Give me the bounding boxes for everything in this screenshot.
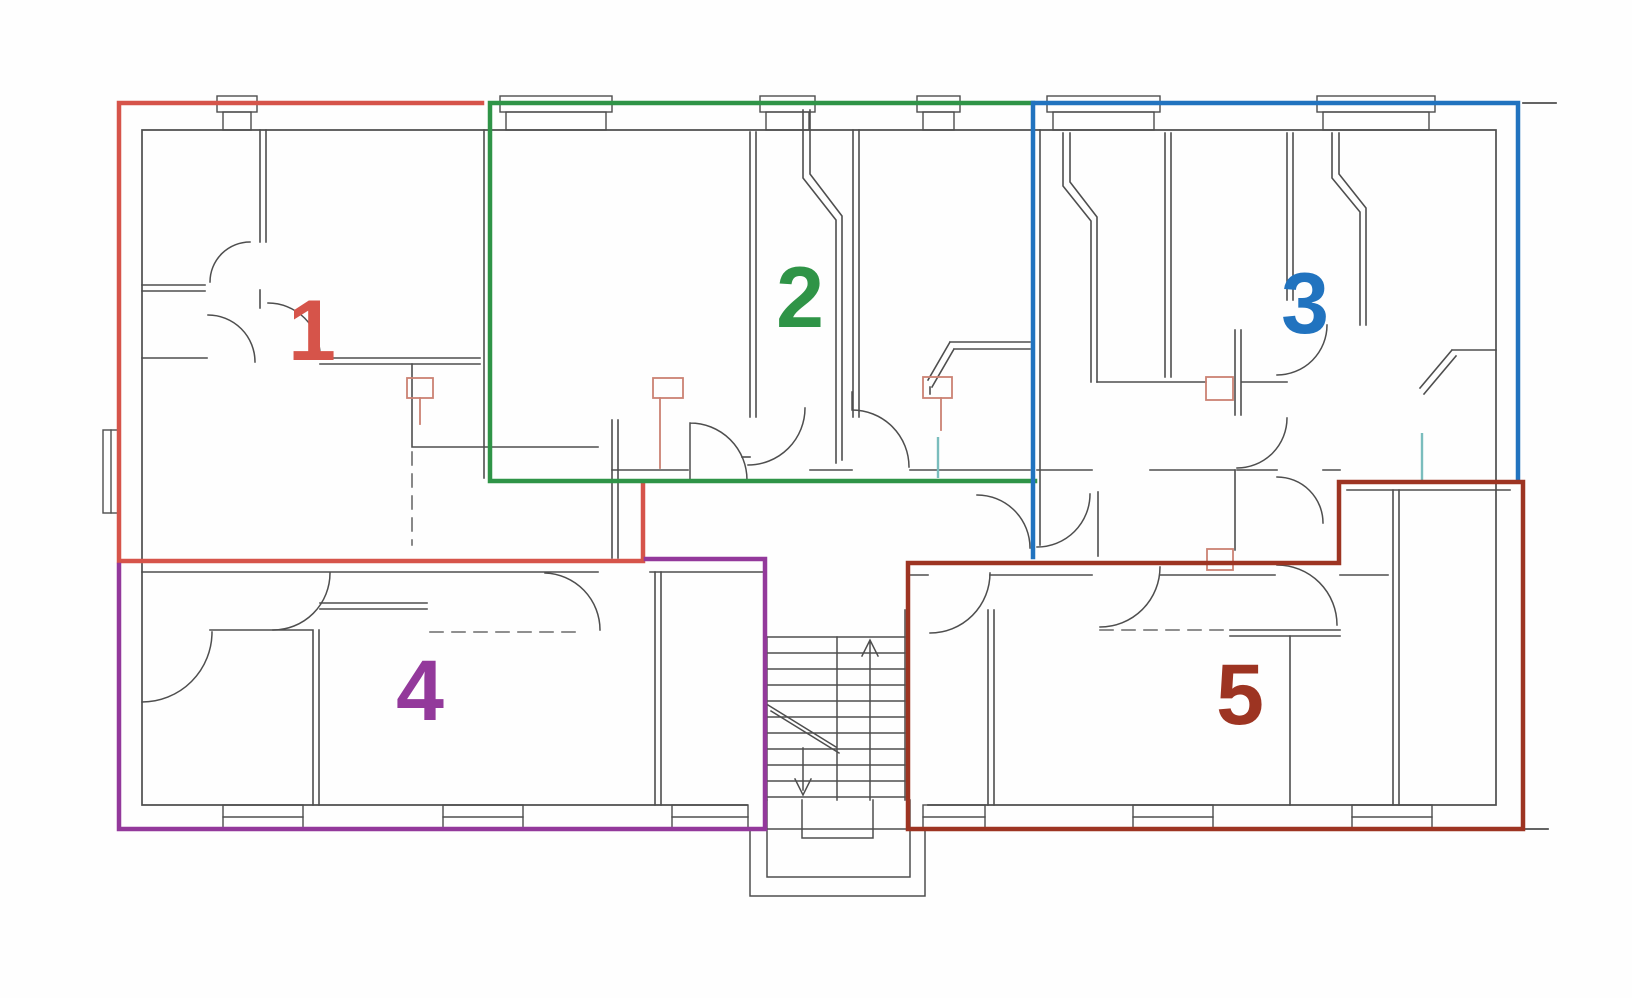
floor-plan-page: 1 2 3 4 5 xyxy=(0,0,1632,998)
window xyxy=(1352,805,1432,829)
window xyxy=(923,805,985,829)
window xyxy=(672,805,748,829)
window xyxy=(1133,805,1213,829)
glass-partitions xyxy=(938,433,1422,480)
floor-plan-drawing: 1 2 3 4 5 xyxy=(0,0,1632,998)
unit-2-label: 2 xyxy=(776,250,824,346)
up-arrow-icon xyxy=(862,640,878,800)
stair-break-line xyxy=(768,705,839,753)
unit-1-outline xyxy=(119,103,643,561)
staircase xyxy=(750,610,925,896)
window xyxy=(443,805,523,829)
chimney-symbols xyxy=(407,377,1233,570)
unit-3-label: 3 xyxy=(1281,256,1329,352)
window xyxy=(103,430,119,513)
unit-5-label: 5 xyxy=(1216,647,1264,743)
down-arrow-icon xyxy=(795,748,811,795)
outer-walls xyxy=(142,103,1556,829)
entrance-porch xyxy=(750,800,925,896)
unit-2-outline xyxy=(490,103,1035,481)
unit-1-label: 1 xyxy=(288,283,336,379)
unit-outlines xyxy=(119,103,1523,829)
unit-4-label: 4 xyxy=(396,643,444,739)
unit-3-outline xyxy=(1033,103,1518,557)
window xyxy=(223,805,303,829)
